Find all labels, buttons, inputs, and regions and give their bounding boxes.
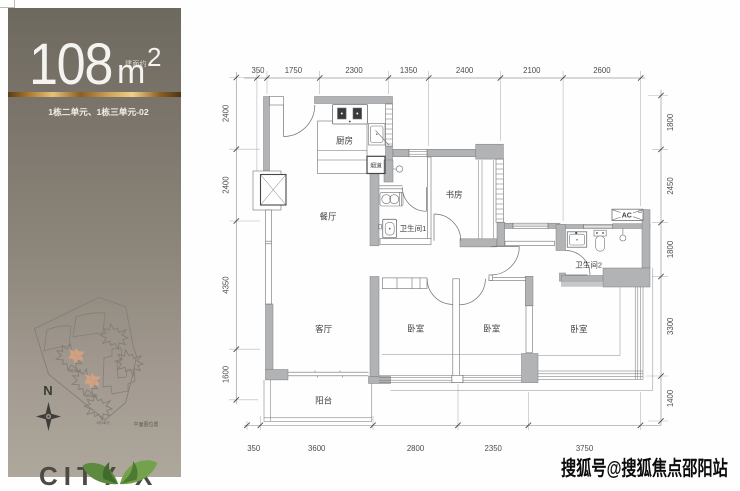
svg-text:2800: 2800 xyxy=(407,444,425,453)
svg-text:2100: 2100 xyxy=(523,66,541,75)
svg-text:3750: 3750 xyxy=(576,444,594,453)
svg-text:350: 350 xyxy=(247,444,261,453)
svg-text:卫生间1: 卫生间1 xyxy=(400,223,427,233)
svg-text:2400: 2400 xyxy=(222,176,231,194)
svg-text:书房: 书房 xyxy=(445,190,462,200)
svg-text:卧室: 卧室 xyxy=(407,324,425,334)
svg-text:2400: 2400 xyxy=(456,66,474,75)
svg-text:1800: 1800 xyxy=(666,113,675,131)
svg-text:2300: 2300 xyxy=(345,66,363,75)
svg-text:阳台: 阳台 xyxy=(315,396,332,406)
svg-text:AC: AC xyxy=(622,212,632,219)
svg-text:1750: 1750 xyxy=(285,66,303,75)
svg-text:1400: 1400 xyxy=(666,389,675,407)
svg-text:餐厅: 餐厅 xyxy=(319,212,337,222)
svg-text:2600: 2600 xyxy=(593,66,611,75)
svg-text:4350: 4350 xyxy=(222,276,231,294)
svg-text:1600: 1600 xyxy=(222,365,231,383)
svg-text:厨房: 厨房 xyxy=(336,136,353,146)
svg-text:卧室: 卧室 xyxy=(483,324,501,334)
svg-text:1350: 1350 xyxy=(400,66,418,75)
svg-text:3300: 3300 xyxy=(666,317,675,335)
svg-text:卫生间2: 卫生间2 xyxy=(575,260,602,270)
svg-text:卧室: 卧室 xyxy=(570,324,588,334)
svg-text:2400: 2400 xyxy=(222,104,231,122)
svg-text:2350: 2350 xyxy=(485,444,503,453)
svg-text:1800: 1800 xyxy=(666,240,675,258)
svg-text:350: 350 xyxy=(251,66,265,75)
svg-text:烟道: 烟道 xyxy=(370,162,382,170)
svg-text:客厅: 客厅 xyxy=(315,324,333,334)
svg-text:2450: 2450 xyxy=(666,177,675,195)
svg-text:3600: 3600 xyxy=(308,444,326,453)
